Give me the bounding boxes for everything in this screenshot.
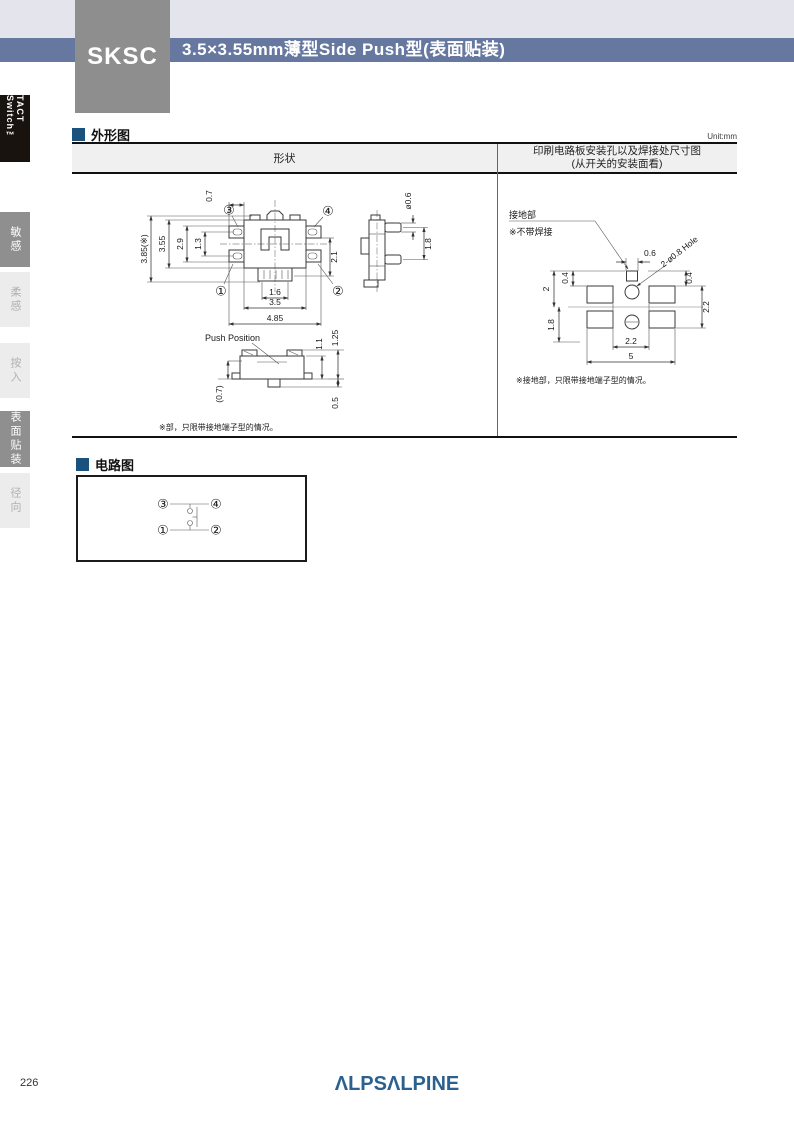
page-title: 3.5×3.55mm薄型Side Push型(表面贴装) bbox=[182, 38, 505, 62]
terminal-2-label: ② bbox=[332, 284, 344, 299]
circuit-diagram-box: ③ ④ ① ② bbox=[76, 475, 307, 562]
hole-callout: 2-ø0.8 Hole bbox=[659, 234, 700, 269]
dim-total-height: 3.85(※) bbox=[139, 234, 149, 263]
dim-push-stem: (0.7) bbox=[214, 385, 224, 403]
push-position-label: Push Position bbox=[205, 333, 260, 343]
sidebar-tab-anru: 按入 bbox=[0, 343, 30, 398]
circuit-terminal-4: ④ bbox=[210, 497, 222, 512]
dim-stem-pitch: 1.8 bbox=[423, 238, 433, 250]
dim-push-body-height: 1.1 bbox=[314, 338, 324, 350]
pcb-column-header: 印刷电路板安装孔以及焊接处尺寸图 (从开关的安装面看) bbox=[497, 144, 737, 172]
unit-label: Unit:mm bbox=[707, 132, 737, 141]
dim-push-total-height: 1.25 bbox=[330, 329, 340, 346]
shape-drawing: 3.85(※) 3.55 2.9 1.3 0.7 ③ ④ ① ② bbox=[72, 174, 497, 436]
dim-tab-width: 0.7 bbox=[204, 190, 214, 202]
dim-total-width: 4.85 bbox=[267, 313, 284, 323]
column-divider bbox=[497, 144, 498, 436]
dim-actuator-width: 1.6 bbox=[269, 287, 281, 297]
dim-right-height: 2.1 bbox=[329, 251, 339, 263]
dim-ground-width: 0.6 bbox=[644, 248, 656, 258]
dim-pad-span: 5 bbox=[629, 351, 634, 361]
alps-alpine-logo: ΛLPSΛLPINE bbox=[0, 1073, 794, 1096]
terminal-4-label: ④ bbox=[322, 204, 334, 219]
section-bullet-icon bbox=[72, 128, 85, 141]
dim-pad-height: 2.2 bbox=[701, 301, 711, 313]
pcb-note: ※接地部，只限带接地端子型的情况。 bbox=[516, 375, 651, 385]
dim-pad-gap: 2.2 bbox=[625, 336, 637, 346]
catalog-page: SKSC 3.5×3.55mm薄型Side Push型(表面贴装) TACT S… bbox=[0, 0, 794, 1123]
sidebar-tab-minkan: 敏感 bbox=[0, 212, 30, 267]
shape-note: ※部，只限带接地端子型的情况。 bbox=[159, 422, 278, 432]
circuit-section-header: 电路图 bbox=[76, 455, 134, 474]
product-code-box: SKSC bbox=[75, 0, 170, 113]
circuit-terminal-2: ② bbox=[210, 523, 222, 538]
sidebar-tab-smd: 表面贴装 bbox=[0, 411, 30, 467]
sidebar-tab-rougan: 柔感 bbox=[0, 272, 30, 327]
product-code: SKSC bbox=[87, 43, 158, 71]
circuit-terminal-3: ③ bbox=[157, 497, 169, 512]
dim-ground-gap: 0.4 bbox=[560, 272, 570, 284]
terminal-1-label: ① bbox=[215, 284, 227, 299]
terminal-3-label: ③ bbox=[223, 203, 235, 218]
dim-body-height: 3.55 bbox=[157, 235, 167, 252]
pcb-pattern-drawing: 接地部 ※不带焊接 2-ø0.8 Hole bbox=[498, 174, 737, 436]
outline-table-header: 形状 印刷电路板安装孔以及焊接处尺寸图 (从开关的安装面看) bbox=[72, 144, 737, 174]
section-bullet-icon bbox=[76, 458, 89, 471]
shape-column-header: 形状 bbox=[72, 144, 497, 172]
dim-slot-height: 1.3 bbox=[193, 238, 203, 250]
dim-push-protrusion: 0.5 bbox=[330, 397, 340, 409]
dim-stem-dia: ø0.6 bbox=[403, 192, 413, 209]
sidebar-series-label: TACT Switch™ bbox=[0, 95, 30, 162]
dim-inner-height: 2.9 bbox=[175, 238, 185, 250]
circuit-diagram: ③ ④ ① ② bbox=[78, 477, 305, 560]
circuit-section-title: 电路图 bbox=[95, 455, 134, 474]
outline-table: 形状 印刷电路板安装孔以及焊接处尺寸图 (从开关的安装面看) bbox=[72, 142, 737, 438]
dim-body-width: 3.5 bbox=[269, 297, 281, 307]
no-solder-label: ※不带焊接 bbox=[509, 226, 553, 237]
ground-label: 接地部 bbox=[509, 209, 536, 220]
dim-center-to-ground: 2 bbox=[541, 286, 551, 291]
outline-table-body: 3.85(※) 3.55 2.9 1.3 0.7 ③ ④ ① ② bbox=[72, 174, 737, 436]
circuit-terminal-1: ① bbox=[157, 523, 169, 538]
dim-center-to-bottom: 1.8 bbox=[546, 319, 556, 331]
sidebar-tab-radial: 径向 bbox=[0, 473, 30, 528]
dim-right-gap: 0.4 bbox=[684, 272, 694, 284]
